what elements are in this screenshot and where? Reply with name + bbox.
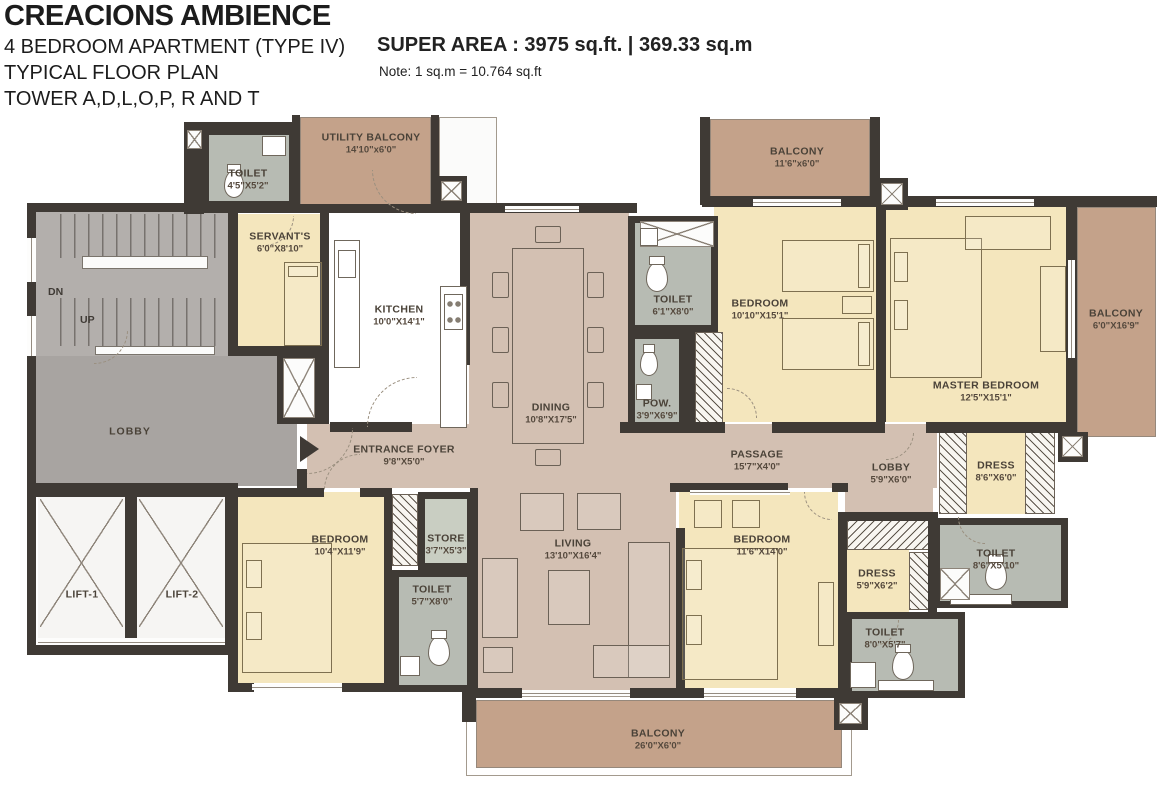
page-title: CREACIONS AMBIENCE [4, 0, 331, 33]
room-label-dress-4: DRESS5'9"X6'2" [857, 568, 898, 593]
wall [620, 422, 725, 433]
window [936, 199, 1034, 206]
wardrobe-icon [1040, 266, 1066, 352]
wall [772, 422, 885, 433]
room-label-servants: SERVANT'S6'0"X8'10" [249, 231, 310, 256]
room-label-toilet-master: TOILET8'6"X5'10" [973, 548, 1019, 573]
wardrobe-master-right [1025, 430, 1055, 514]
super-area-text: SUPER AREA : 3975 sq.ft. | 369.33 sq.m [377, 34, 752, 57]
sofa-icon [482, 558, 518, 638]
armchair-icon [520, 493, 564, 531]
cushion-icon [732, 500, 760, 528]
pillow-icon [894, 300, 908, 330]
room-label-store: STORE3'7"X5'3" [426, 533, 467, 558]
floor-plan: CREACIONS AMBIENCE 4 BEDROOM APARTMENT (… [0, 0, 1160, 788]
sink-icon [338, 250, 356, 278]
room-label-lift-1: LIFT-1 [66, 588, 99, 601]
room-label-powder: POW.3'9"X6'9" [637, 398, 678, 423]
room-label-dining: DINING10'8"X17'5" [525, 402, 577, 427]
shaft-x-icon [187, 130, 202, 149]
toilet-bowl-icon [428, 636, 450, 666]
window-shelf [690, 490, 790, 495]
washbasin-icon [400, 656, 420, 676]
stair-landing [82, 256, 208, 269]
wall [384, 488, 392, 688]
room-label-balcony-right: BALCONY6'0"X16'9" [1079, 308, 1153, 333]
wardrobe-bedroom-2 [695, 332, 723, 428]
wall [832, 483, 848, 492]
chair-icon [535, 226, 561, 243]
washbasin-icon [262, 136, 286, 156]
side-unit-icon [818, 582, 834, 646]
wall [228, 683, 254, 692]
wall [292, 115, 300, 209]
window [27, 316, 36, 356]
wall [297, 469, 307, 488]
wall [470, 688, 522, 698]
nightstand-icon [842, 296, 872, 314]
washbasin-icon [640, 228, 658, 246]
chair-icon [587, 382, 604, 408]
entrance-arrow-icon [300, 436, 319, 462]
armchair-icon [577, 493, 621, 530]
wall [228, 483, 238, 692]
room-lobby-main [36, 356, 297, 486]
room-label-toilet-3: TOILET5'7"X8'0" [412, 584, 453, 609]
room-label-living: LIVING13'10"X16'4" [545, 538, 602, 563]
chair-icon [492, 327, 509, 353]
chair-icon [587, 327, 604, 353]
window [505, 206, 579, 212]
pillow-icon [858, 244, 870, 288]
pillow-icon [246, 612, 262, 640]
wall [360, 488, 392, 497]
window [1068, 260, 1075, 358]
vanity-counter [878, 680, 934, 691]
wall [228, 488, 324, 497]
sofa-icon [593, 645, 670, 678]
room-label-passage: PASSAGE15'7"X4'0" [731, 449, 784, 474]
wall [228, 203, 238, 353]
shaft-x-icon [1062, 436, 1083, 457]
pillow-icon [246, 560, 262, 588]
subtitle-apartment-type: 4 BEDROOM APARTMENT (TYPE IV) [4, 36, 345, 59]
wall [700, 117, 710, 205]
window [252, 684, 342, 690]
washbasin-icon [850, 662, 876, 688]
room-label-lobby-inner: LOBBY5'9"X6'0" [871, 462, 912, 487]
wall [27, 483, 234, 497]
wall [686, 330, 695, 430]
hob-icon [444, 294, 463, 330]
room-label-utility-balcony: UTILITY BALCONY14'10"x6'0" [322, 132, 421, 157]
wall [876, 207, 886, 422]
wall [926, 422, 1075, 433]
wall [470, 488, 478, 690]
room-label-entrance-foyer: ENTRANCE FOYER9'8"X5'0" [353, 444, 455, 469]
room-label-lobby-main: LOBBY [109, 425, 151, 438]
toilet-bowl-icon [892, 650, 914, 680]
room-label-bedroom-2: BEDROOM10'10"X15'1" [732, 298, 789, 323]
shaft-x-icon [881, 183, 903, 205]
conversion-note: Note: 1 sq.m = 10.764 sq.ft [379, 64, 541, 79]
wall [928, 512, 937, 616]
bench-icon [965, 216, 1051, 250]
side-table-icon [483, 647, 513, 673]
room-label-master-bedroom: MASTER BEDROOM12'5"X15'1" [933, 380, 1039, 405]
window [522, 690, 630, 696]
chair-icon [492, 382, 509, 408]
shaft-x-icon [441, 181, 462, 201]
room-label-bedroom-3: BEDROOM10'4"X11'9" [312, 534, 369, 559]
pillow-icon [288, 266, 318, 277]
wall [462, 688, 476, 722]
room-label-bedroom-4: BEDROOM11'6"X14'0" [734, 534, 791, 559]
toilet-bowl-icon [640, 350, 658, 376]
wall [838, 512, 847, 700]
stair-treads-upper [60, 214, 226, 258]
pillow-icon [894, 252, 908, 282]
pillow-icon [858, 322, 870, 366]
wall [670, 688, 704, 698]
wall [838, 512, 938, 521]
subtitle-floor-plan: TYPICAL FLOOR PLAN [4, 62, 219, 85]
shower-icon [940, 568, 970, 600]
wall [342, 683, 392, 692]
wall [125, 497, 137, 638]
cushion-icon [694, 500, 722, 528]
lift-1-x-icon [40, 499, 123, 627]
wall [1066, 196, 1157, 207]
chair-icon [535, 449, 561, 466]
room-label-balcony-bottom: BALCONY26'0"X6'0" [631, 728, 685, 753]
room-label-kitchen: KITCHEN10'0"X14'1" [373, 304, 425, 329]
wall [27, 645, 237, 655]
chair-icon [587, 272, 604, 298]
room-label-toilet-4: TOILET8'0"X5'7" [865, 627, 906, 652]
coffee-table-icon [548, 570, 590, 625]
shaft-x-icon [839, 703, 862, 724]
room-label-dress-master: DRESS8'6"X6'0" [976, 460, 1017, 485]
window [704, 690, 796, 696]
room-label-lift-2: LIFT-2 [166, 588, 199, 601]
wardrobe-master-left [939, 430, 967, 514]
pillow-icon [686, 615, 702, 645]
room-label-toilet-2: TOILET6'1"X8'0" [653, 294, 694, 319]
chair-icon [492, 272, 509, 298]
toilet-bowl-icon [646, 262, 668, 292]
window [753, 199, 841, 206]
shaft-x-icon [283, 358, 315, 418]
wall [796, 688, 848, 698]
subtitle-towers: TOWER A,D,L,O,P, R AND T [4, 88, 260, 111]
wardrobe-bedroom-3 [392, 494, 418, 566]
room-label-balcony-top: BALCONY11'6"x6'0" [770, 146, 824, 171]
window [27, 238, 36, 282]
room-label-toilet-servant: TOILET4'5"X5'2" [228, 168, 269, 193]
pillow-icon [686, 560, 702, 590]
room-store [418, 492, 474, 570]
stairs-up-label: UP [80, 314, 95, 326]
lift-2-x-icon [139, 499, 223, 627]
wardrobe-dress-4-top [847, 520, 935, 550]
stairs-dn-label: DN [48, 286, 63, 298]
